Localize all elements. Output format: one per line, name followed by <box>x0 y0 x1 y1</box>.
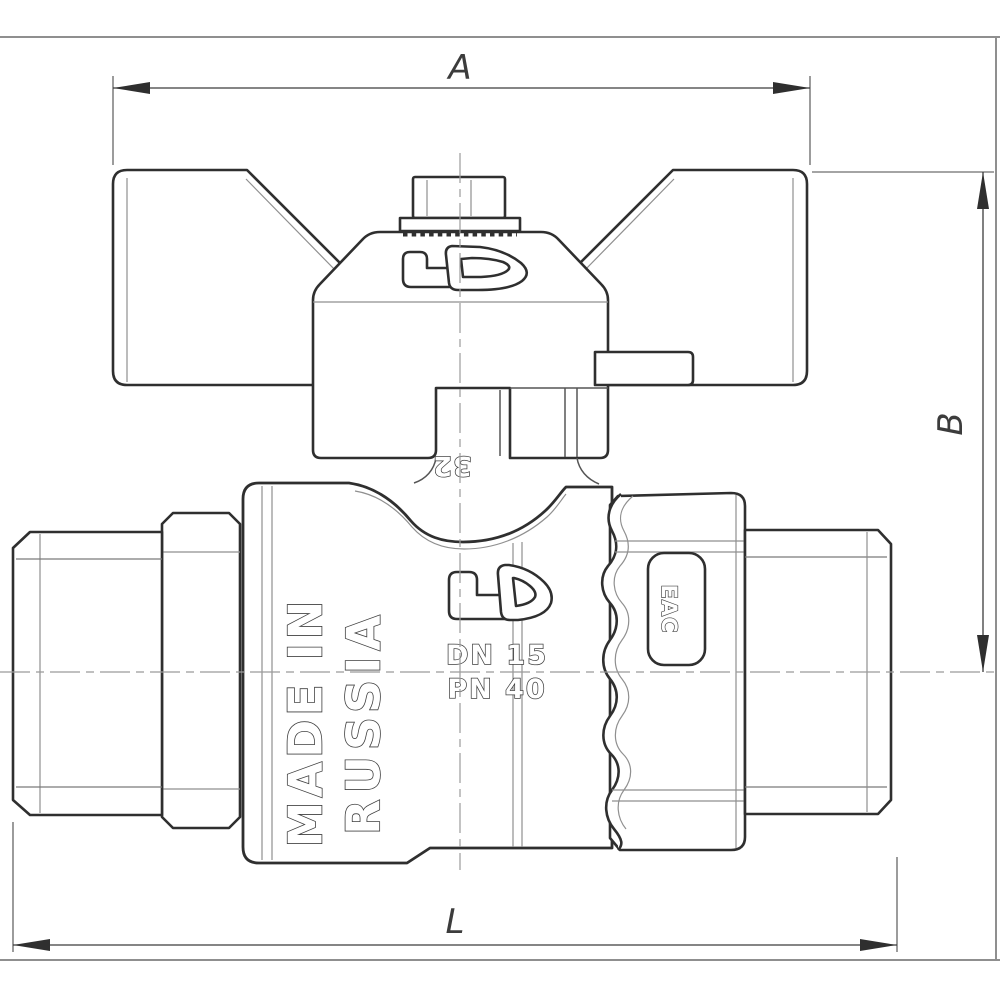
pn-marking: PN 40 <box>447 674 546 705</box>
dim-b-label: B <box>931 412 971 435</box>
dim-l-arrow-right <box>860 939 897 951</box>
valve-body: EAC MADE IN RUSSIA DN 15 PN 40 32 <box>13 450 891 863</box>
dim-b-arrow-bottom <box>977 635 989 672</box>
left-thread <box>13 532 162 815</box>
dim-a-arrow-right <box>773 82 810 94</box>
handle-size-marking: 32 <box>432 450 472 481</box>
dim-a-label: A <box>446 48 471 88</box>
dim-l-arrow-left <box>13 939 50 951</box>
made-in-text: MADE IN <box>279 597 333 848</box>
handle-stop-tab <box>595 352 693 385</box>
drawing-page: EAC MADE IN RUSSIA DN 15 PN 40 32 A B <box>0 0 1000 1000</box>
dn-marking: DN 15 <box>446 640 548 671</box>
eac-badge-text: EAC <box>657 584 681 633</box>
ld-emblem-d-hole <box>461 258 509 277</box>
dim-b-arrow-top <box>977 172 989 209</box>
dimension-a: A <box>113 48 810 165</box>
handle-left-wing <box>113 170 345 385</box>
left-union-nut <box>162 513 240 828</box>
neck-fillet-right <box>577 458 599 484</box>
valve-technical-drawing: EAC MADE IN RUSSIA DN 15 PN 40 32 A B <box>0 0 1000 1000</box>
dim-a-arrow-left <box>113 82 150 94</box>
russia-text: RUSSIA <box>337 609 391 835</box>
eac-badge: EAC <box>648 553 705 665</box>
dim-l-label: L <box>446 902 465 942</box>
